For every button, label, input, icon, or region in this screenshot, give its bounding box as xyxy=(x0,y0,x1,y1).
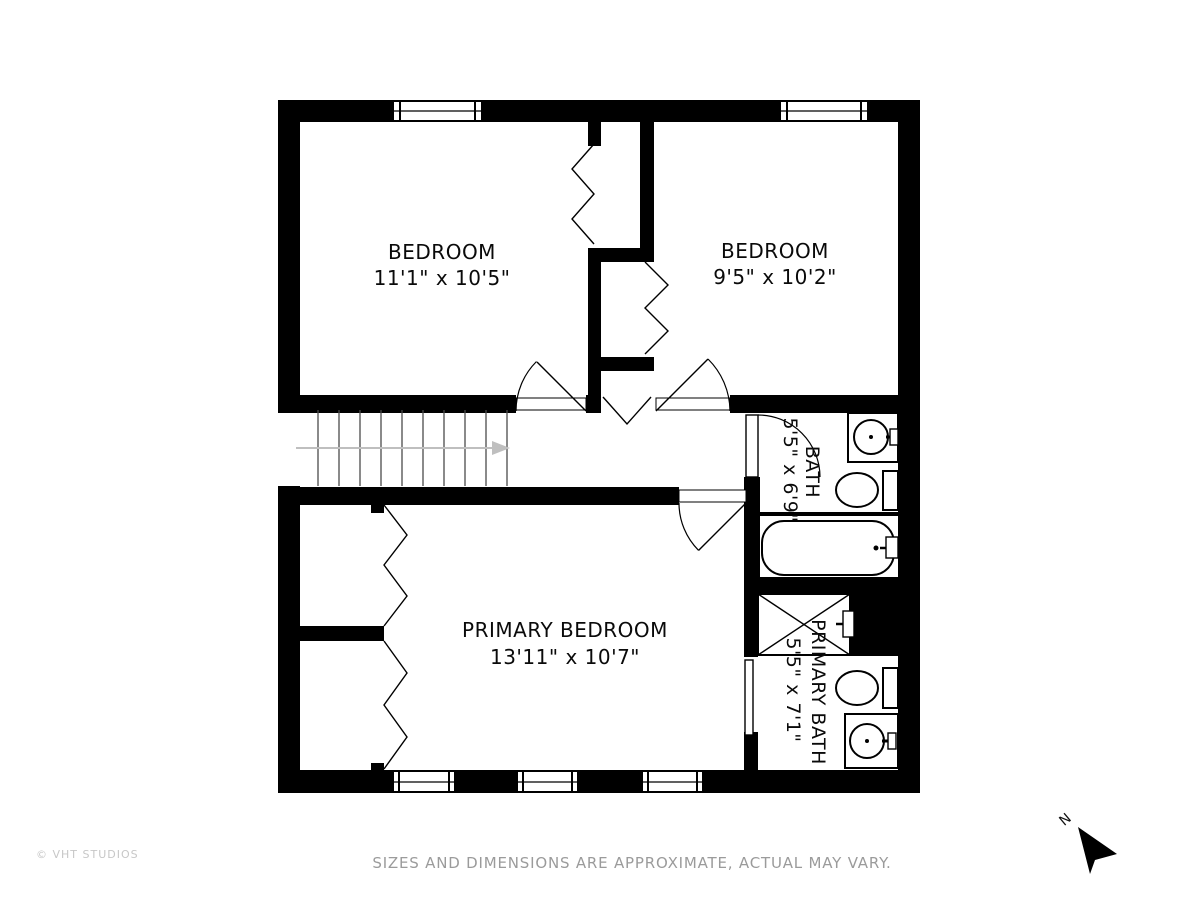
primary-bedroom-dims: 13'11" x 10'7" xyxy=(490,645,640,669)
stairs xyxy=(296,410,510,486)
bath-name: BATH xyxy=(801,446,823,498)
disclaimer-text: SIZES AND DIMENSIONS ARE APPROXIMATE, AC… xyxy=(372,854,891,872)
copyright-text: © VHT STUDIOS xyxy=(36,848,139,861)
window-icon xyxy=(642,771,703,792)
sink-icon xyxy=(845,714,898,768)
bedroom1-dims: 11'1" x 10'5" xyxy=(374,266,511,290)
door-right-bedroom xyxy=(656,359,730,411)
north-arrow-icon xyxy=(1078,827,1117,874)
door-left-bedroom xyxy=(516,362,586,412)
closet-doors xyxy=(384,144,668,769)
wall-bottom xyxy=(278,770,920,793)
floor-plan-page: BEDROOM 11'1" x 10'5" BEDROOM 9'5" x 10'… xyxy=(0,0,1200,900)
stairs-direction-arrow xyxy=(296,441,510,455)
bedroom1-name: BEDROOM xyxy=(388,240,496,264)
window-icon xyxy=(517,771,578,792)
bedroom2-dims: 9'5" x 10'2" xyxy=(713,265,837,289)
toilet-icon xyxy=(836,668,898,708)
floor-plan-svg: BEDROOM 11'1" x 10'5" BEDROOM 9'5" x 10'… xyxy=(0,0,1200,900)
primary-bath-name: PRIMARY BATH xyxy=(807,619,829,765)
wall-left-upper xyxy=(278,100,300,408)
closet-door-left-bedroom xyxy=(572,144,594,244)
door-primary-bedroom xyxy=(679,490,746,550)
window-icon xyxy=(393,771,455,792)
closet-door-primary-upper xyxy=(384,505,407,626)
bedroom2-name: BEDROOM xyxy=(721,239,829,263)
closet-door-hallway xyxy=(603,397,651,424)
sink-icon xyxy=(848,413,898,462)
bathtub-icon xyxy=(762,521,898,575)
primary-bedroom-name: PRIMARY BEDROOM xyxy=(462,618,668,642)
shower-icon xyxy=(758,594,854,655)
window-icon xyxy=(393,101,482,121)
north-label: N xyxy=(1056,810,1074,829)
door-primary-bath xyxy=(745,660,753,735)
window-icon xyxy=(780,101,868,121)
bath-dims: 5'5" x 6'9" xyxy=(779,417,801,522)
footer: © VHT STUDIOS SIZES AND DIMENSIONS ARE A… xyxy=(36,848,892,872)
north-arrow: N xyxy=(1056,810,1117,874)
closet-door-primary-lower xyxy=(384,641,407,769)
closet-door-right-bedroom xyxy=(645,262,668,354)
wall-right xyxy=(898,100,920,793)
toilet-icon xyxy=(836,471,898,510)
primary-bath-dims: 5'5" x 7'1" xyxy=(782,637,804,742)
